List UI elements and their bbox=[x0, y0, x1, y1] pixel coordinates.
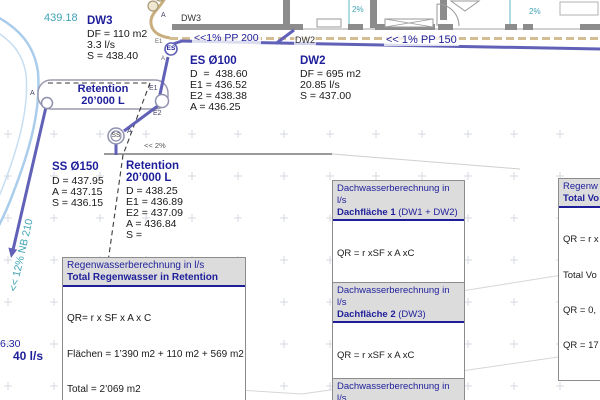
calc-box-title: Dachwasserberechnung in l/s bbox=[337, 381, 460, 400]
tick-dw3: DW3 bbox=[180, 13, 202, 24]
pipe-label-pp200: <<1% PP 200 bbox=[192, 33, 261, 44]
node-tan-a: A bbox=[161, 12, 166, 19]
calc-box-total-dachflaeche: Dachwasserberechnung in l/s Total Dachfl… bbox=[332, 378, 465, 400]
wall-slope-label: << 2% bbox=[144, 140, 166, 151]
sewer-pipe-dw2-branch bbox=[276, 30, 294, 44]
site-plan-canvas: << 12% NB 210 439.18 DW3 DF = 110 m2 3.3… bbox=[0, 0, 600, 400]
elevation-marker: 439.18 bbox=[44, 13, 78, 24]
roof-slope-label: 2% bbox=[352, 4, 364, 15]
retention-s: S = bbox=[126, 230, 142, 241]
calc-box-title: Regenw bbox=[563, 181, 600, 193]
manhole-roof bbox=[148, 1, 158, 11]
calc-box-title: Dachwasserberechnung in l/s bbox=[337, 285, 460, 309]
roof-slope-label: 2% bbox=[529, 6, 541, 17]
room-outline bbox=[560, 2, 598, 15]
manhole-ss-label: SS bbox=[108, 132, 124, 139]
node-es-e1: E1 bbox=[155, 39, 162, 45]
dw2-title: DW2 bbox=[300, 56, 326, 67]
manhole-es-label: ES bbox=[163, 45, 179, 52]
calc-box-title: Regenwasserberechnung in l/s bbox=[67, 260, 241, 272]
dw3-title: DW3 bbox=[87, 16, 113, 27]
node-e1: E1 bbox=[149, 85, 158, 92]
fixture-symbol bbox=[317, 19, 341, 27]
dw2-level: S = 437.00 bbox=[300, 91, 351, 102]
calc-box-total-volumen: Regenw Total Vo QR = r x Total Vo QR = 0… bbox=[558, 178, 600, 381]
calc-box-title: Dachwasserberechnung in l/s bbox=[337, 183, 460, 207]
retention-data-title2: 20’000 L bbox=[126, 173, 171, 184]
sink-symbol bbox=[451, 1, 479, 11]
pipe-label-pp150: << 1% PP 150 bbox=[384, 35, 459, 46]
es-a: A = 436.25 bbox=[190, 102, 241, 113]
calc-box-total-regenwasser: Regenwasserberechnung in l/s Total Regen… bbox=[62, 257, 246, 400]
ss-s: S = 436.15 bbox=[52, 198, 103, 209]
ss-title: SS Ø150 bbox=[52, 162, 99, 173]
node-e2: E2 bbox=[153, 110, 162, 117]
tick-dw2: DW2 bbox=[294, 35, 316, 46]
node-ss-a: A bbox=[127, 128, 132, 135]
node-a: A bbox=[30, 90, 35, 97]
retention-data-title1: Retention bbox=[126, 161, 179, 172]
node-es-a: A bbox=[161, 56, 165, 62]
dw3-level: S = 438.40 bbox=[87, 51, 138, 62]
es-title: ES Ø100 bbox=[190, 56, 237, 67]
outfall-flow: 40 l/s bbox=[13, 351, 43, 362]
